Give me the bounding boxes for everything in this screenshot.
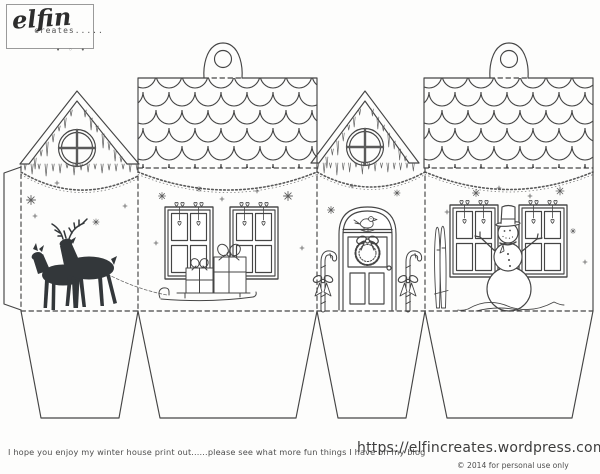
house-template-drawing [0,0,600,474]
base-flap [138,311,317,418]
scalloped-roof-presents [138,78,317,168]
base-flap [317,311,425,418]
base-flap [425,311,593,418]
front-door [339,207,396,310]
footer-license: © 2014 for personal use only [457,461,569,470]
base-flaps [21,311,593,418]
top-hat-crown [501,206,515,224]
round-window-left [59,130,96,167]
scalloped-roof-snowman [424,78,593,168]
candy-cane-icon [397,253,420,310]
gable-roof-reindeer-panel [20,91,139,176]
printable-sheet: elfin creates..... • ◦ • [0,0,600,474]
gable-roof-door-panel [311,91,419,175]
reindeer-silhouette-icon [31,219,117,310]
base-flap [21,311,138,418]
hang-tab-left [204,43,242,78]
four-pane-window [519,200,567,277]
bead-garland [21,172,593,193]
candy-cane-icon [312,253,335,310]
skis-icon [435,226,449,308]
four-pane-window [450,200,498,277]
antlers [52,219,87,239]
round-window-right [347,129,384,166]
footer-url: https://elfincreates.wordpress.com [357,440,600,456]
glue-tab [4,167,21,310]
hang-tab-right [490,43,528,78]
